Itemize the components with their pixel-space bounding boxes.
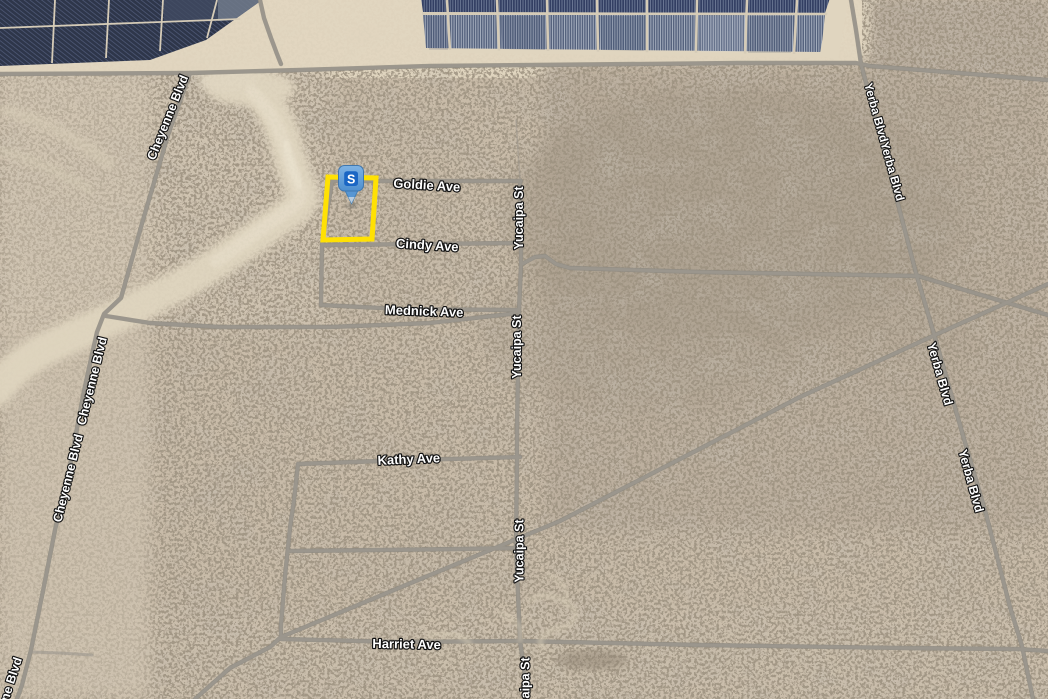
svg-text:Yucaipa St: Yucaipa St: [512, 186, 526, 250]
svg-text:Yucaipa St: Yucaipa St: [513, 519, 527, 583]
svg-text:Yucaipa St: Yucaipa St: [510, 315, 524, 379]
svg-text:Yucaipa St: Yucaipa St: [519, 657, 533, 699]
svg-text:S: S: [347, 172, 355, 186]
svg-text:Harriet Ave: Harriet Ave: [372, 636, 441, 652]
svg-text:Kathy Ave: Kathy Ave: [377, 450, 440, 468]
svg-text:Mednick Ave: Mednick Ave: [385, 302, 464, 320]
